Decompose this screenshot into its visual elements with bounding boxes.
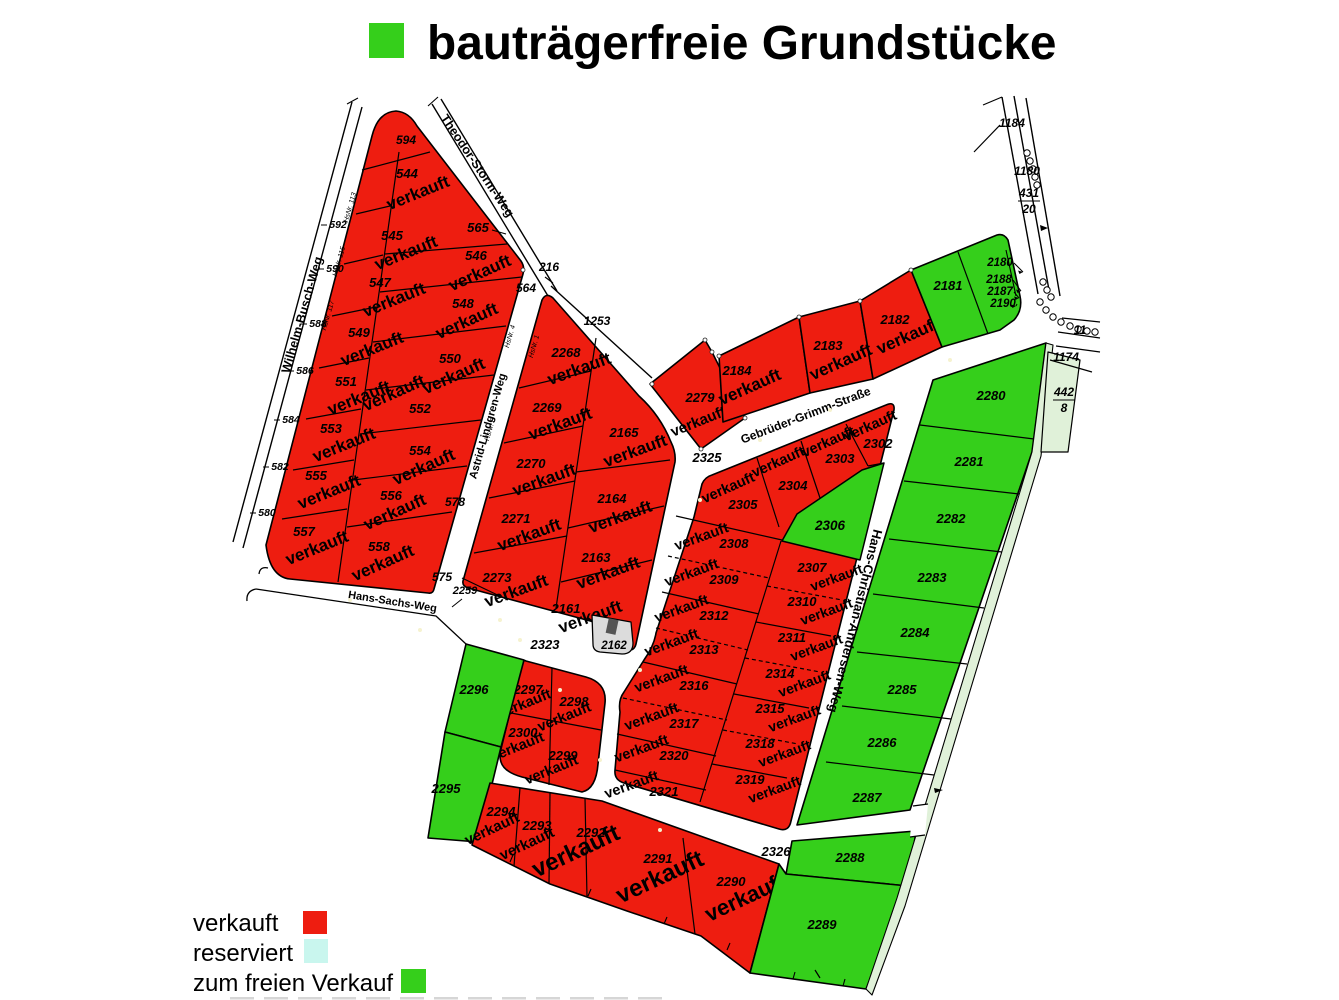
svg-text:551: 551 — [335, 374, 357, 389]
svg-text:2183: 2183 — [813, 338, 844, 353]
svg-text:2188: 2188 — [985, 274, 1012, 286]
svg-text:1180: 1180 — [1014, 164, 1040, 178]
svg-text:2284: 2284 — [900, 625, 931, 640]
svg-text:2180: 2180 — [986, 257, 1013, 269]
svg-text:2283: 2283 — [917, 570, 948, 585]
svg-text:216: 216 — [538, 260, 559, 274]
svg-text:2312: 2312 — [699, 608, 730, 623]
svg-text:verkauft: verkauft — [193, 910, 279, 937]
svg-text:2164: 2164 — [597, 491, 628, 506]
svg-text:1174: 1174 — [1053, 350, 1079, 364]
svg-text:2165: 2165 — [609, 425, 640, 440]
svg-text:586: 586 — [296, 365, 314, 377]
svg-text:2323: 2323 — [530, 637, 561, 652]
svg-text:2313: 2313 — [689, 642, 720, 657]
svg-text:zum freien Verkauf: zum freien Verkauf — [193, 970, 393, 997]
svg-text:11: 11 — [1074, 323, 1087, 337]
svg-text:547: 547 — [369, 275, 391, 290]
svg-text:2309: 2309 — [709, 572, 740, 587]
svg-text:575: 575 — [432, 570, 452, 584]
svg-text:584: 584 — [282, 414, 300, 426]
svg-text:2306: 2306 — [814, 518, 846, 533]
svg-text:557: 557 — [293, 524, 315, 539]
svg-text:2270: 2270 — [516, 456, 547, 471]
svg-text:549: 549 — [348, 325, 370, 340]
svg-text:2295: 2295 — [431, 781, 462, 796]
svg-text:2259: 2259 — [452, 585, 478, 597]
svg-text:2325: 2325 — [692, 450, 723, 465]
svg-text:2305: 2305 — [728, 497, 759, 512]
svg-text:2296: 2296 — [459, 682, 490, 697]
svg-text:442: 442 — [1053, 385, 1074, 399]
svg-text:2326: 2326 — [761, 844, 792, 859]
svg-text:2303: 2303 — [825, 451, 856, 466]
svg-text:8: 8 — [1061, 401, 1068, 415]
svg-text:582: 582 — [271, 461, 289, 473]
svg-text:565: 565 — [467, 220, 489, 235]
svg-text:2190: 2190 — [989, 298, 1016, 310]
svg-text:2282: 2282 — [936, 511, 967, 526]
svg-text:20: 20 — [1021, 202, 1036, 216]
svg-text:553: 553 — [320, 421, 342, 436]
svg-text:2268: 2268 — [551, 345, 582, 360]
svg-text:2302: 2302 — [863, 436, 894, 451]
svg-text:2181: 2181 — [933, 278, 963, 293]
svg-text:2279: 2279 — [685, 390, 716, 405]
svg-text:2285: 2285 — [887, 682, 918, 697]
svg-text:555: 555 — [305, 468, 327, 483]
svg-text:1184: 1184 — [999, 116, 1025, 130]
svg-text:545: 545 — [381, 228, 403, 243]
svg-text:2273: 2273 — [482, 570, 513, 585]
svg-text:552: 552 — [409, 401, 431, 416]
svg-text:594: 594 — [396, 133, 416, 147]
svg-text:578: 578 — [445, 495, 465, 509]
svg-text:544: 544 — [396, 166, 418, 181]
svg-text:2281: 2281 — [954, 454, 984, 469]
svg-text:2317: 2317 — [669, 716, 700, 731]
svg-text:2286: 2286 — [867, 735, 898, 750]
svg-text:2280: 2280 — [976, 388, 1007, 403]
svg-text:1253: 1253 — [584, 314, 611, 328]
svg-text:2289: 2289 — [807, 917, 838, 932]
svg-text:2308: 2308 — [719, 536, 750, 551]
svg-text:2304: 2304 — [778, 478, 809, 493]
svg-text:2162: 2162 — [600, 640, 627, 652]
svg-text:2311: 2311 — [777, 630, 806, 645]
svg-text:2316: 2316 — [679, 678, 710, 693]
svg-text:2271: 2271 — [501, 511, 531, 526]
svg-text:reserviert: reserviert — [193, 940, 293, 967]
svg-text:2184: 2184 — [722, 363, 753, 378]
svg-text:2320: 2320 — [659, 748, 690, 763]
svg-text:2187: 2187 — [986, 286, 1013, 298]
svg-text:2321: 2321 — [649, 784, 679, 799]
svg-text:431: 431 — [1018, 186, 1039, 200]
svg-text:2287: 2287 — [852, 790, 883, 805]
svg-text:2269: 2269 — [532, 400, 563, 415]
svg-text:bauträgerfreie Grundstücke: bauträgerfreie Grundstücke — [427, 17, 1057, 70]
svg-text:580: 580 — [258, 507, 276, 519]
svg-text:2288: 2288 — [835, 850, 866, 865]
svg-text:564: 564 — [516, 281, 536, 295]
svg-text:2182: 2182 — [880, 312, 911, 327]
